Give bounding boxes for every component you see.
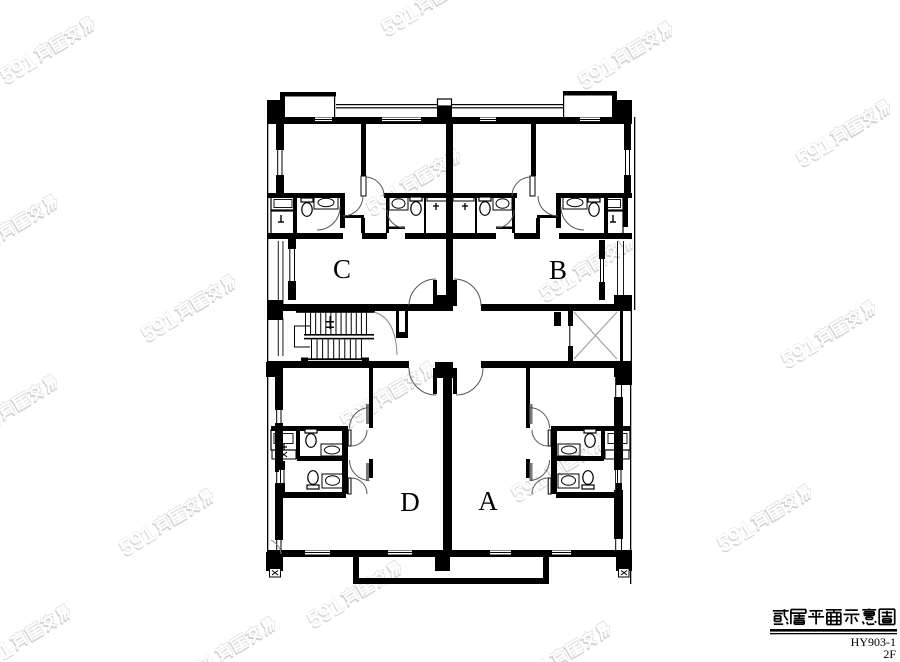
svg-text:2F: 2F bbox=[883, 647, 896, 661]
svg-text:C: C bbox=[333, 254, 351, 284]
svg-text:A: A bbox=[478, 486, 498, 516]
svg-text:B: B bbox=[549, 255, 567, 285]
svg-text:D: D bbox=[400, 487, 420, 517]
